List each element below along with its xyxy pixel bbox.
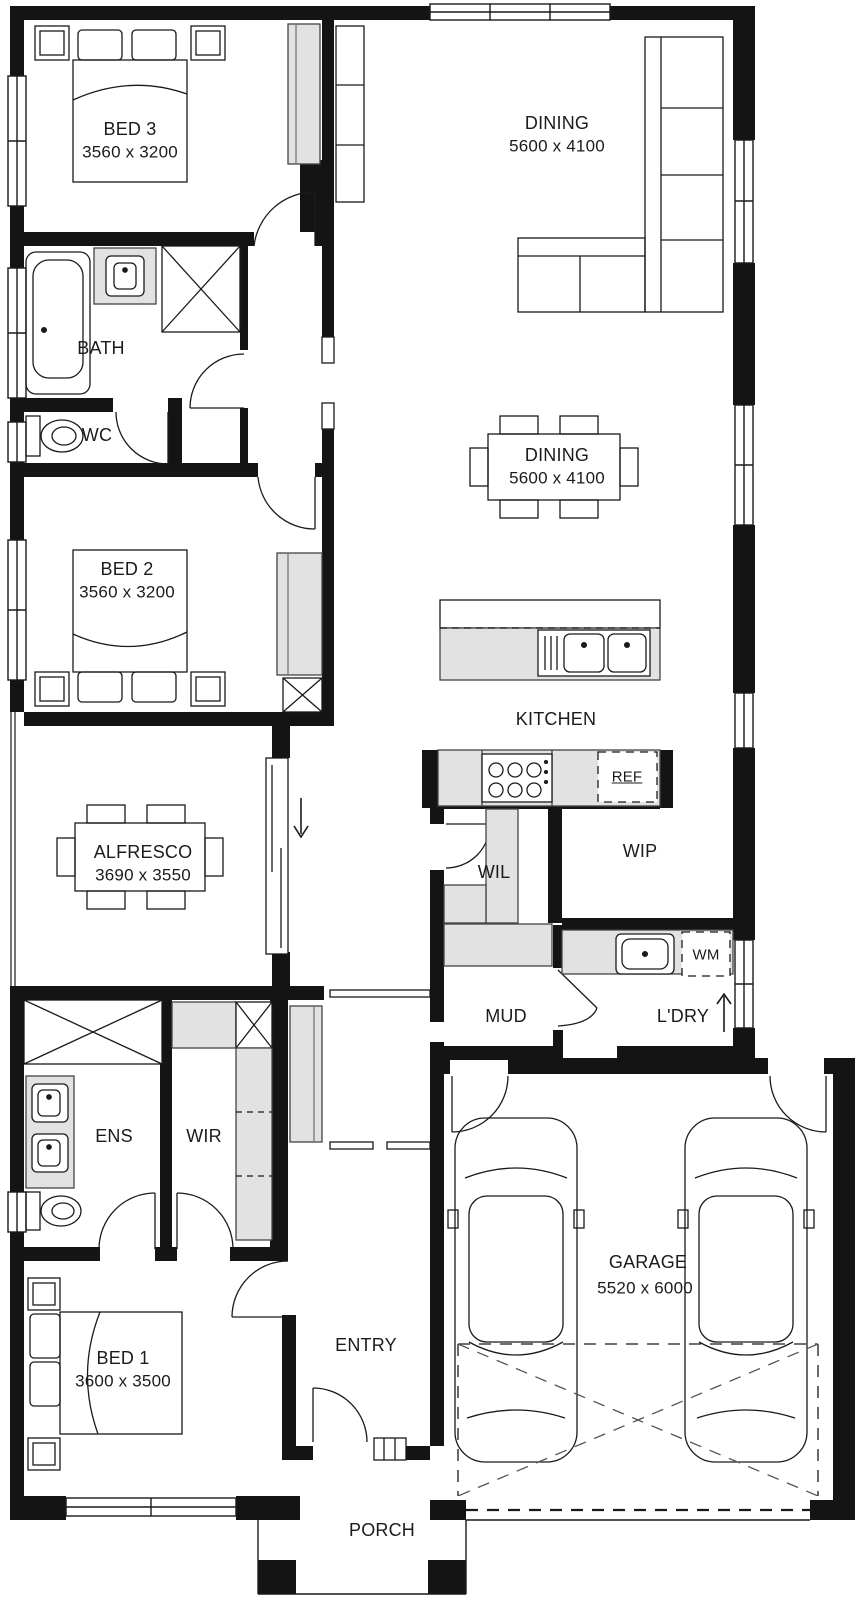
room-dims-alfresco: 3690 x 3550: [95, 867, 191, 884]
car-icon: [448, 1118, 584, 1462]
wardrobe-icon: [288, 24, 320, 164]
room-dims-dining: 5600 x 4100: [509, 470, 605, 487]
nib-walls: [322, 337, 430, 1149]
kitchen-island-icon: [440, 600, 660, 680]
room-label-bath: BATH: [77, 339, 124, 357]
room-label-wip: WIP: [623, 842, 658, 860]
door-wc: [116, 412, 168, 464]
room-label-garage: GARAGE: [609, 1253, 687, 1271]
room-dims-bed1: 3600 x 3500: [75, 1373, 171, 1390]
ens-vanity-icon: [26, 1076, 74, 1188]
garage-floor-marking: [458, 1344, 818, 1510]
room-label-living: DINING: [525, 114, 589, 132]
room-label-bed2: BED 2: [100, 560, 153, 578]
door-bed1: [232, 1261, 288, 1317]
room-label-alfresco: ALFRESCO: [94, 843, 193, 861]
entry-cupboard-icon: [290, 1006, 322, 1142]
door-wir: [177, 1193, 233, 1249]
up-arrow-icon: [717, 994, 731, 1032]
bath-vanity-icon: [94, 248, 156, 304]
room-label-wil: WIL: [478, 863, 511, 881]
window-bath: [8, 268, 26, 398]
alfresco-boundary: [11, 712, 15, 986]
toilet-icon: [26, 416, 83, 456]
floor-plan: BED 3 3560 x 3200 DINING 5600 x 4100 BAT…: [0, 0, 860, 1600]
room-label-entry: ENTRY: [335, 1336, 397, 1354]
down-arrow-icon: [294, 798, 308, 837]
room-label-porch: PORCH: [349, 1521, 415, 1539]
window-bed1: [66, 1498, 236, 1516]
room-label-laundry: L'DRY: [657, 1007, 709, 1025]
room-dims-garage: 5520 x 6000: [597, 1280, 693, 1297]
entry-step-icon: [374, 1438, 406, 1460]
sliding-door: [266, 758, 288, 954]
ens-shower-icon: [24, 1000, 162, 1064]
sofa-icon: [518, 37, 723, 312]
laundry-tub-icon: [616, 934, 674, 974]
window-right-1: [735, 140, 753, 263]
cooktop-icon: [482, 754, 552, 802]
room-label-mud: MUD: [485, 1007, 527, 1025]
door-bed2: [258, 477, 315, 529]
window-bed2: [8, 540, 26, 680]
door-front: [313, 1388, 367, 1442]
doors: [99, 192, 826, 1442]
double-sink-icon: [538, 630, 650, 676]
interior-walls: [10, 20, 733, 1460]
linen-cupboard-icon: [336, 26, 364, 202]
fridge-label: REF: [612, 770, 643, 785]
washing-machine-label: WM: [692, 948, 719, 963]
door-ens: [99, 1193, 155, 1249]
window-right-2: [735, 405, 753, 525]
window-top: [430, 4, 610, 20]
bathtub-icon: [26, 252, 90, 394]
mud-bench-icon: [444, 924, 552, 966]
window-ens: [8, 1192, 26, 1232]
room-label-wir: WIR: [186, 1127, 222, 1145]
door-garage-side: [770, 1076, 826, 1132]
room-label-bed1: BED 1: [96, 1349, 149, 1367]
porch-slab: [258, 1520, 810, 1594]
room-label-wc: WC: [82, 426, 112, 444]
room-dims-living: 5600 x 4100: [509, 138, 605, 155]
room-label-bed3: BED 3: [103, 120, 156, 138]
shower-icon: [162, 246, 240, 332]
toilet-icon: [26, 1192, 81, 1230]
room-dims-bed3: 3560 x 3200: [82, 144, 178, 161]
laundry-door: [735, 940, 753, 1028]
door-garage-internal: [452, 1076, 508, 1132]
window-bed3: [8, 76, 26, 206]
door-bath: [190, 354, 244, 408]
room-label-dining: DINING: [525, 446, 589, 464]
wir-shelving-icon: [172, 1002, 272, 1240]
dining-table-icon: [470, 416, 638, 518]
room-label-kitchen: KITCHEN: [516, 710, 596, 728]
room-label-ens: ENS: [95, 1127, 133, 1145]
window-right-3: [735, 693, 753, 748]
room-dims-bed2: 3560 x 3200: [79, 584, 175, 601]
wardrobe-icon: [277, 553, 322, 712]
car-icon: [678, 1118, 814, 1462]
window-wc: [8, 422, 26, 462]
door-mud-laundry: [558, 970, 597, 1026]
